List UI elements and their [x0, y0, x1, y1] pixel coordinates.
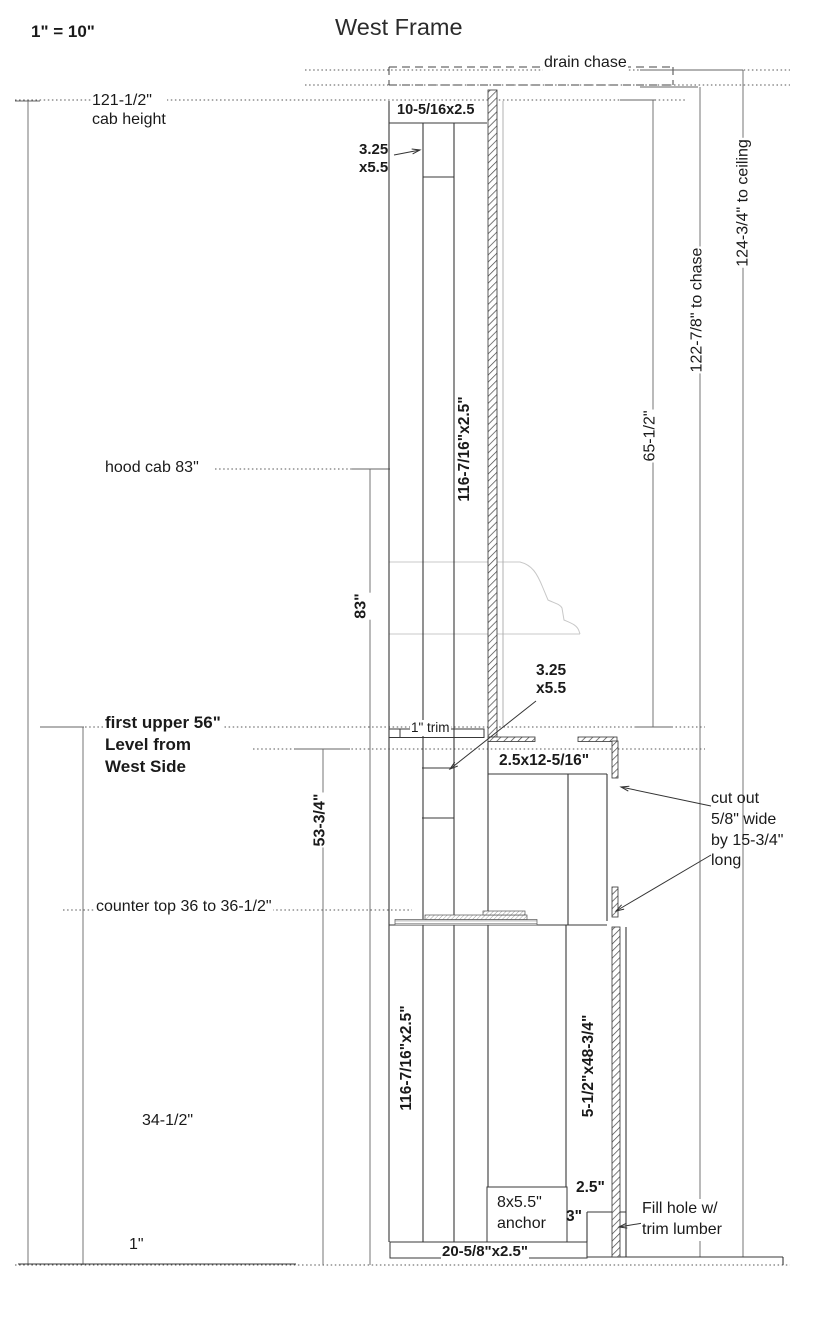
- label-top-plate: 10-5/16x2.5: [396, 102, 475, 119]
- label-fill-hole: Fill hole w/ trim lumber: [641, 1199, 723, 1241]
- label-block-mid: 3.25 x5.5: [535, 662, 567, 699]
- dim-to-chase: 122-7/8" to chase: [689, 247, 708, 374]
- label-first-upper: first upper 56" Level from West Side: [104, 712, 222, 778]
- dim-53-3-4: 53-3/4": [312, 793, 331, 848]
- label-cut-out: cut out 5/8" wide by 15-3/4" long: [710, 789, 784, 872]
- label-block-upper: 3.25 x5.5: [358, 141, 389, 176]
- dim-65-1-2: 65-1/2": [642, 409, 661, 462]
- label-header-board: 2.5x12-5/16": [498, 752, 590, 770]
- label-sill: 20-5/8"x2.5": [441, 1243, 529, 1261]
- label-drain-chase: drain chase: [543, 54, 628, 73]
- counter-top-layers: [395, 911, 537, 925]
- hood-outline: [389, 562, 580, 634]
- west-frame-drawing-page: 1" = 10" West Frame drain chase 121-1/2"…: [0, 0, 816, 1344]
- drawing-title: West Frame: [334, 14, 464, 42]
- dim-3: 3": [565, 1208, 583, 1226]
- scale-note: 1" = 10": [30, 22, 96, 42]
- label-counter-top: counter top 36 to 36-1/2": [95, 898, 273, 917]
- frame-drawing: [0, 0, 816, 1344]
- dim-to-ceiling: 124-3/4" to ceiling: [735, 138, 754, 268]
- dimension-lines: [15, 70, 743, 1265]
- label-board-upper: 116-7/16"x2.5": [456, 395, 474, 502]
- label-1in-trim: 1" trim: [410, 720, 451, 736]
- label-cab-height: 121-1/2" cab height: [91, 92, 167, 130]
- label-hood-cab: hood cab 83": [104, 459, 200, 478]
- dim-1: 1": [128, 1236, 145, 1255]
- label-anchor: 8x5.5" anchor: [496, 1193, 547, 1235]
- dim-83: 83": [353, 592, 372, 619]
- dim-2-5: 2.5": [575, 1179, 606, 1197]
- label-side-board: 5-1/2"x48-3/4": [580, 1014, 598, 1119]
- dim-34-1-2: 34-1/2": [141, 1112, 194, 1131]
- label-board-lower: 116-7/16"x2.5": [398, 1004, 416, 1111]
